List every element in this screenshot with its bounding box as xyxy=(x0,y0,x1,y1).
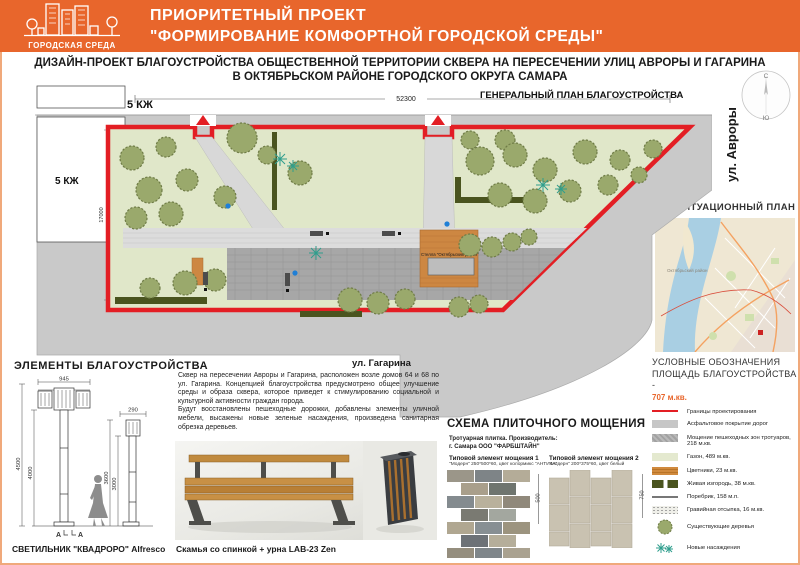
legend-item-lawn: Газон, 489 м.кв. xyxy=(652,453,798,461)
flowerbed-swatch xyxy=(652,467,678,475)
lamp-dim-3600: 3600 xyxy=(104,472,110,485)
paving-dim2-label: 750 xyxy=(640,490,646,499)
page-edge-left xyxy=(0,52,2,565)
lamp-dim-4500: 4500 xyxy=(16,458,22,471)
lamp-dot-icon xyxy=(652,562,678,565)
gravel-swatch xyxy=(652,506,678,514)
building-label-left: 5 КЖ xyxy=(55,176,79,187)
legend-title-line1: УСЛОВНЫЕ ОБОЗНАЧЕНИЯ xyxy=(652,357,798,369)
new-planting-icon xyxy=(652,540,678,556)
pedestrian-lamps xyxy=(225,203,449,275)
asphalt-swatch xyxy=(652,420,678,428)
building-block-left xyxy=(37,117,125,242)
project-title-line1: ПРИОРИТЕТНЫЙ ПРОЕКТ xyxy=(150,7,366,25)
project-description: Сквер на пересечении Авроры и Гагарина, … xyxy=(178,372,439,432)
header-banner: ГОРОДСКАЯ СРЕДА ПРИОРИТЕТНЫЙ ПРОЕКТ "ФОР… xyxy=(0,0,800,52)
subtitle-line2: В ОКТЯБРЬСКОМ РАЙОНЕ ГОРОДСКОГО ОКРУГА С… xyxy=(0,70,800,84)
subtitle-line1: ДИЗАЙН-ПРОЕКТ БЛАГОУСТРОЙСТВА ОБЩЕСТВЕНН… xyxy=(0,56,800,70)
paving-producer-line2: г. Самара ООО "ФАРБШТАЙН" xyxy=(449,444,540,450)
poster-page: ГОРОДСКАЯ СРЕДА ПРИОРИТЕТНЫЙ ПРОЕКТ "ФОР… xyxy=(0,0,800,565)
existing-trees xyxy=(120,123,662,317)
walkway-vertical xyxy=(423,137,455,248)
boundary-line-swatch xyxy=(652,410,678,413)
site-boundary xyxy=(108,127,690,310)
paving-pattern-1 xyxy=(447,470,533,558)
logo-caption: ГОРОДСКАЯ СРЕДА xyxy=(22,41,122,50)
building-label-top: 5 КЖ xyxy=(127,99,153,111)
city-skyline-icon xyxy=(24,2,120,38)
gorodskaya-sreda-logo: ГОРОДСКАЯ СРЕДА xyxy=(22,2,122,50)
description-paragraph-2: Будут восстановлены пешеходные дорожки, … xyxy=(178,406,439,432)
stella-label: Стелла "Октябрьский район" xyxy=(421,252,479,257)
entrance-arrow-1 xyxy=(196,115,210,125)
legend-item-paving: Мощение пешеходных зон тротуаров, 218 м.… xyxy=(652,434,798,449)
lamp-dim-290: 290 xyxy=(128,408,138,414)
legend-title-line2: ПЛОЩАДЬ БЛАГОУСТРОЙСТВА - xyxy=(652,369,798,392)
description-paragraph-1: Сквер на пересечении Авроры и Гагарина, … xyxy=(178,372,439,406)
paving-element1-title: Типовой элемент мощения 1 xyxy=(449,455,539,462)
legend-item-boundary: Границы проектирования xyxy=(652,408,798,416)
curb-line-swatch xyxy=(652,496,678,498)
dimension-52300-label: 52300 xyxy=(396,96,416,103)
bench-drawing xyxy=(185,455,355,525)
legend-item-existing-trees: Существующие деревья xyxy=(652,519,798,535)
paved-area-tiled xyxy=(227,248,566,300)
entrance-arrow-2 xyxy=(431,115,445,125)
section-mark-a1: А xyxy=(56,532,61,539)
legend-panel: УСЛОВНЫЕ ОБОЗНАЧЕНИЯ ПЛОЩАДЬ БЛАГОУСТРОЙ… xyxy=(652,357,798,565)
bench-caption: Скамья со спинкой + урна LAB-23 Zen xyxy=(176,544,336,554)
dimension-52300-line xyxy=(135,95,670,103)
paving-element2-title: Типовой элемент мощения 2 xyxy=(549,455,639,462)
legend-item-gravel: Гравийная отсыпка, 16 м.кв. xyxy=(652,506,798,514)
paving-element2-spec: "Модерн" 200*375*60, цвет белый xyxy=(549,462,624,467)
stella-object xyxy=(428,258,474,275)
tree-icon xyxy=(652,519,678,535)
elements-section-title: ЭЛЕМЕНТЫ БЛАГОУСТРОЙСТВА xyxy=(14,360,208,372)
general-plan-title: ГЕНЕРАЛЬНЫЙ ПЛАН БЛАГОУСТРОЙСТВА xyxy=(480,89,683,101)
project-title-line2: "ФОРМИРОВАНИЕ КОМФОРТНОЙ ГОРОДСКОЙ СРЕДЫ… xyxy=(150,28,603,46)
hedge-swatch xyxy=(652,480,678,488)
wood-deck xyxy=(192,230,478,287)
legend-area-value: 707 м.кв. xyxy=(652,393,798,402)
legend-item-curb: Поребрик, 158 м.п. xyxy=(652,493,798,501)
lamp-technical-drawing: 945 4500 4000 290 3600 3000 А А xyxy=(8,376,170,542)
legend-item-new-plantings: Новые насаждения xyxy=(652,540,798,556)
compass-north-label: С xyxy=(764,73,769,80)
paving-dim1-label: 500 xyxy=(536,493,542,502)
situational-plan-title: СИТУАЦИОННЫЙ ПЛАН xyxy=(676,202,795,213)
paving-swatch xyxy=(652,434,678,442)
section-mark-a2: А xyxy=(78,532,83,539)
building-block-top xyxy=(37,86,125,108)
paving-element1-spec: "Модерн" 250*500*60, цвет колормикс "АНТ… xyxy=(449,462,557,467)
map-district-label: Октябрьский район xyxy=(667,267,708,273)
paving-producer-line1: Тротуарная плитка. Производитель: xyxy=(449,436,558,442)
lawn-swatch xyxy=(652,453,678,461)
dimension-17000-label: 17000 xyxy=(99,207,105,222)
walkway-horizontal xyxy=(123,228,587,248)
lamp-dim-4000: 4000 xyxy=(28,467,34,480)
legend-item-lamps: Светильники торшерного типа для пешеходн… xyxy=(652,562,798,565)
benches-and-urns xyxy=(203,231,401,292)
situational-map: Октябрьский район xyxy=(655,218,795,352)
new-plantings xyxy=(273,152,567,260)
walkway-diagonal xyxy=(195,137,297,245)
dimension-17000-line xyxy=(104,130,110,300)
legend-item-asphalt: Асфальтовое покрытие дорог xyxy=(652,420,798,428)
paving-pattern-2 xyxy=(549,470,639,548)
compass-icon: С Ю xyxy=(737,66,795,124)
compass-south-label: Ю xyxy=(763,115,770,122)
hedge-strips xyxy=(115,132,527,317)
lamp-caption: СВЕТИЛЬНИК "КВАДРОРО" Alfresco xyxy=(12,544,165,554)
map-site-marker xyxy=(758,330,763,335)
poster-subtitle: ДИЗАЙН-ПРОЕКТ БЛАГОУСТРОЙСТВА ОБЩЕСТВЕНН… xyxy=(0,56,800,84)
lamp-dim-3000: 3000 xyxy=(112,478,118,491)
street-label-gagarina: ул. Гагарина xyxy=(352,358,411,369)
lamp-dim-945: 945 xyxy=(59,377,69,383)
bench-and-urn-photo xyxy=(175,441,437,540)
legend-item-hedge: Живая изгородь, 38 м.кв. xyxy=(652,480,798,488)
paving-section-title: СХЕМА ПЛИТОЧНОГО МОЩЕНИЯ xyxy=(447,418,645,430)
legend-item-flowerbeds: Цветники, 23 м.кв. xyxy=(652,467,798,475)
